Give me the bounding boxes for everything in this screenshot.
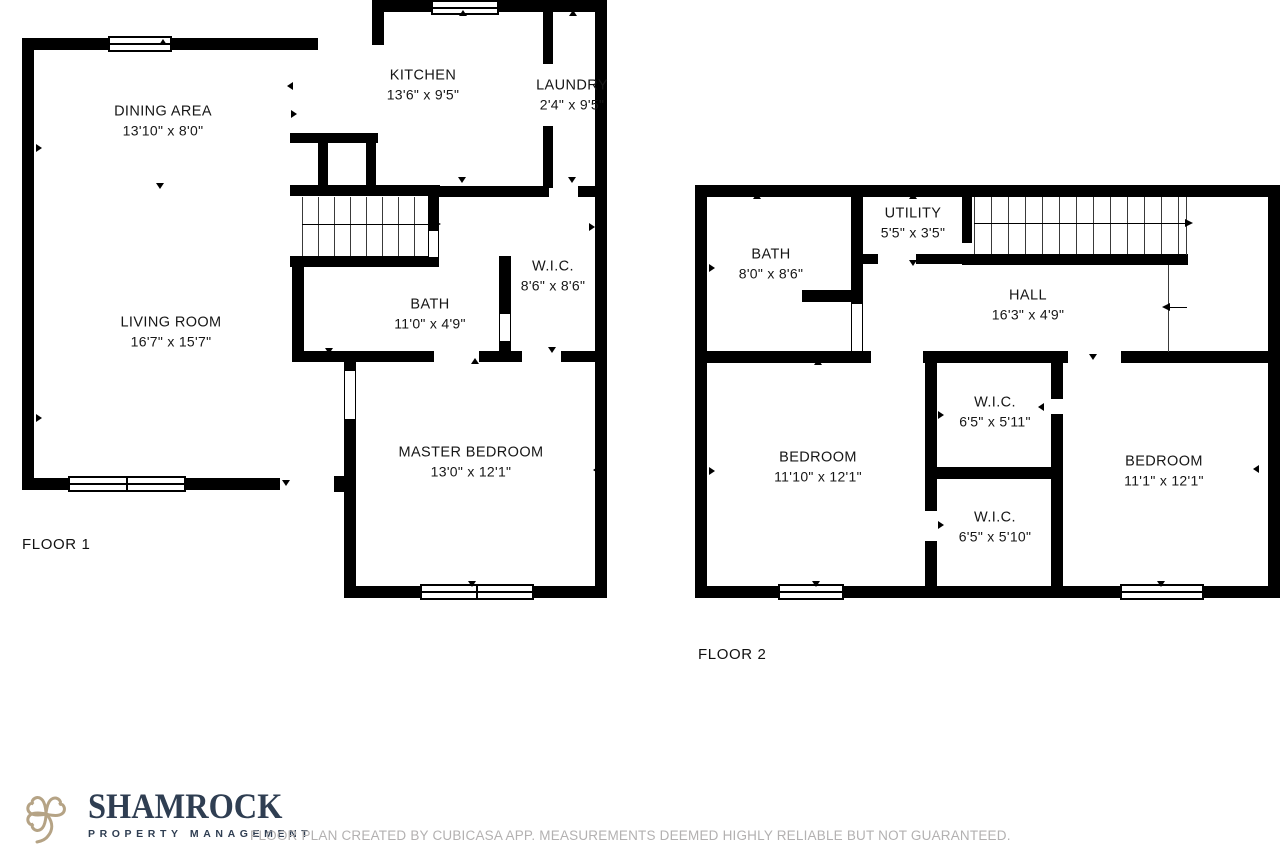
- dimension-tick-icon: [471, 358, 479, 364]
- room-dims: 13'6" x 9'5": [387, 86, 460, 102]
- room-label-bath-f1: BATH 11'0" x 4'9": [394, 297, 466, 332]
- dimension-tick-icon: [814, 359, 822, 365]
- dimension-tick-icon: [1038, 403, 1044, 411]
- wall: [292, 256, 304, 362]
- room-dims: 2'4" x 9'5": [536, 96, 608, 112]
- floor2-label: FLOOR 2: [698, 646, 766, 663]
- wall: [925, 541, 937, 598]
- room-dims: 6'5" x 5'11": [959, 413, 1031, 429]
- dimension-tick-icon: [909, 260, 917, 266]
- room-name: HALL: [992, 288, 1065, 305]
- room-name: UTILITY: [881, 206, 946, 223]
- room-label-bedroom-right: BEDROOM 11'1" x 12'1": [1124, 454, 1204, 489]
- wall: [1268, 185, 1280, 598]
- window-pane-line: [1122, 591, 1202, 593]
- shamrock-clover-icon: [8, 780, 84, 860]
- room-dims: 8'6" x 8'6": [521, 277, 586, 293]
- dimension-tick-icon: [709, 264, 715, 272]
- wall: [499, 256, 511, 314]
- stair-direction-arrow: [1170, 307, 1187, 308]
- dimension-tick-icon: [392, 256, 400, 262]
- door-opening: [344, 371, 356, 419]
- dimension-tick-icon: [291, 110, 297, 118]
- wall: [1051, 467, 1063, 586]
- dimension-tick-icon: [709, 467, 715, 475]
- stair-direction-arrow: [974, 223, 1185, 224]
- wall: [292, 351, 434, 362]
- window: [68, 476, 186, 492]
- window-divider: [126, 477, 128, 491]
- room-name: KITCHEN: [387, 68, 460, 85]
- wall: [695, 351, 871, 363]
- room-label-hall: HALL 16'3" x 4'9": [992, 288, 1065, 323]
- window: [420, 584, 534, 600]
- wall: [561, 351, 607, 362]
- wall: [802, 290, 851, 302]
- wall: [578, 186, 607, 197]
- window-divider: [476, 585, 478, 599]
- staircase: [302, 197, 428, 256]
- wall: [1051, 414, 1063, 467]
- room-label-utility: UTILITY 5'5" x 3'5": [881, 206, 946, 241]
- wall: [22, 38, 34, 490]
- door-opening: [428, 231, 439, 257]
- dimension-tick-icon: [812, 581, 820, 587]
- room-dims: 5'5" x 3'5": [881, 224, 946, 240]
- wall: [1121, 351, 1280, 363]
- dimension-tick-icon: [458, 177, 466, 183]
- door-opening: [851, 304, 863, 351]
- brand-name: SHAMROCK: [88, 788, 290, 824]
- stair-arrowhead-icon: [433, 220, 441, 228]
- dimension-tick-icon: [1089, 354, 1097, 360]
- room-name: DINING AREA: [114, 104, 212, 121]
- dimension-tick-icon: [287, 82, 293, 90]
- wall: [543, 126, 553, 188]
- wall: [695, 185, 707, 598]
- room-label-bedroom-left: BEDROOM 11'10" x 12'1": [774, 450, 862, 485]
- room-label-wic-upper: W.I.C. 6'5" x 5'11": [959, 395, 1031, 430]
- dimension-tick-icon: [348, 464, 354, 472]
- stair-direction-arrow: [302, 224, 433, 225]
- room-dims: 16'7" x 15'7": [120, 333, 221, 349]
- room-dims: 13'0" x 12'1": [399, 463, 544, 479]
- dimension-tick-icon: [156, 183, 164, 189]
- room-label-wic-f1: W.I.C. 8'6" x 8'6": [521, 259, 586, 294]
- dimension-tick-icon: [589, 223, 595, 231]
- dimension-tick-icon: [548, 347, 556, 353]
- room-label-living-room: LIVING ROOM 16'7" x 15'7": [120, 315, 221, 350]
- dimension-tick-icon: [1253, 465, 1259, 473]
- wall: [499, 340, 511, 362]
- dimension-tick-icon: [468, 581, 476, 587]
- room-label-laundry: LAUNDRY 2'4" x 9'5": [536, 78, 608, 113]
- dimension-tick-icon: [36, 144, 42, 152]
- wall: [925, 351, 937, 511]
- room-name: W.I.C.: [521, 259, 586, 276]
- wall: [372, 0, 384, 45]
- room-name: BEDROOM: [1124, 454, 1204, 471]
- disclaimer-text: FLOOR PLAN CREATED BY CUBICASA APP. MEAS…: [250, 828, 1011, 843]
- room-name: MASTER BEDROOM: [399, 445, 544, 462]
- dimension-tick-icon: [753, 193, 761, 199]
- room-name: BATH: [394, 297, 466, 314]
- room-label-master-bedroom: MASTER BEDROOM 13'0" x 12'1": [399, 445, 544, 480]
- room-name: W.I.C.: [959, 395, 1031, 412]
- dimension-tick-icon: [159, 39, 167, 45]
- room-label-dining-area: DINING AREA 13'10" x 8'0": [114, 104, 212, 139]
- wall: [962, 185, 972, 243]
- wall: [290, 133, 378, 143]
- dimension-tick-icon: [990, 470, 998, 476]
- dimension-tick-icon: [909, 193, 917, 199]
- brand-logo: SHAMROCK PROPERTY MANAGEMENT: [8, 780, 312, 860]
- wall: [695, 185, 1280, 197]
- stair-arrowhead-icon: [1185, 219, 1193, 227]
- staircase: [974, 197, 1185, 254]
- room-label-bath-f2: BATH 8'0" x 8'6": [739, 247, 804, 282]
- room-name: BATH: [739, 247, 804, 264]
- window: [778, 584, 844, 600]
- dimension-tick-icon: [459, 10, 467, 16]
- room-dims: 8'0" x 8'6": [739, 265, 804, 281]
- window-pane-line: [780, 591, 842, 593]
- wall: [543, 0, 553, 64]
- dimension-tick-icon: [938, 411, 944, 419]
- room-name: W.I.C.: [959, 510, 1032, 527]
- room-name: LAUNDRY: [536, 78, 608, 95]
- room-dims: 11'10" x 12'1": [774, 468, 862, 484]
- dimension-tick-icon: [569, 10, 577, 16]
- room-dims: 11'0" x 4'9": [394, 315, 466, 331]
- room-dims: 13'10" x 8'0": [114, 122, 212, 138]
- door-opening: [499, 314, 511, 341]
- room-name: LIVING ROOM: [120, 315, 221, 332]
- room-dims: 16'3" x 4'9": [992, 306, 1065, 322]
- stair-arrowhead-icon: [1162, 303, 1170, 311]
- dimension-tick-icon: [325, 348, 333, 354]
- floor1-label: FLOOR 1: [22, 536, 90, 553]
- room-dims: 11'1" x 12'1": [1124, 472, 1204, 488]
- dimension-tick-icon: [857, 223, 863, 231]
- wall: [962, 254, 1188, 265]
- room-label-kitchen: KITCHEN 13'6" x 9'5": [387, 68, 460, 103]
- room-dims: 6'5" x 5'10": [959, 528, 1032, 544]
- wall: [1051, 363, 1063, 399]
- wall: [437, 186, 549, 197]
- dimension-tick-icon: [1157, 581, 1165, 587]
- wall: [290, 185, 440, 196]
- room-label-wic-lower: W.I.C. 6'5" x 5'10": [959, 510, 1032, 545]
- wall: [923, 351, 1068, 363]
- dimension-tick-icon: [282, 480, 290, 486]
- dimension-tick-icon: [593, 466, 599, 474]
- dimension-tick-icon: [568, 177, 576, 183]
- window-pane-line: [433, 7, 497, 9]
- room-name: BEDROOM: [774, 450, 862, 467]
- wall: [851, 188, 863, 304]
- dimension-tick-icon: [938, 521, 944, 529]
- dimension-tick-icon: [36, 414, 42, 422]
- wall: [290, 256, 439, 267]
- wall: [851, 254, 878, 264]
